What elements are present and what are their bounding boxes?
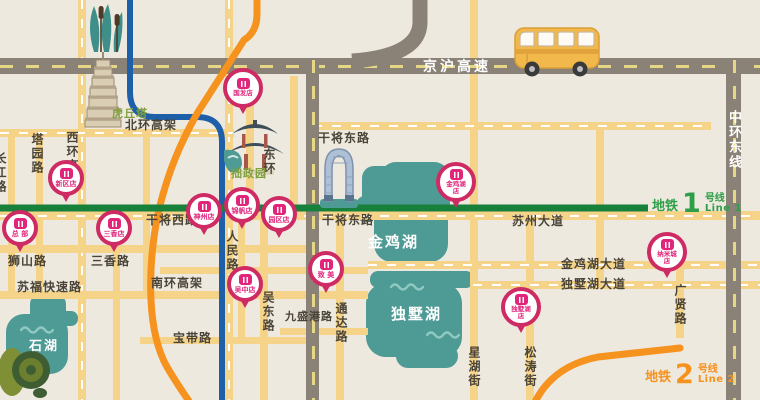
store-pin-zhimei[interactable]: 致 美 <box>308 251 344 287</box>
store-pin-yuanqu[interactable]: 园区店 <box>261 196 297 232</box>
road-shishan-sanxiang <box>0 245 312 253</box>
store-pin-guofa[interactable]: 国发店 <box>223 68 263 108</box>
label-guangxian-road: 广贤路 <box>674 284 686 326</box>
store-pin-label: 致 美 <box>313 271 339 279</box>
metro-line1-cn: 地铁 <box>652 195 678 214</box>
store-pin-label: 新区店 <box>53 180 79 188</box>
store-pin-label: 独墅湖店 <box>510 306 533 321</box>
metro-line2-badge: 地铁 2 号线 Line 2 <box>645 364 735 387</box>
road-minor <box>290 76 298 209</box>
label-jinjihu-avenue: 金鸡湖大道 <box>561 258 626 270</box>
metro-line2-cn: 地铁 <box>645 366 671 385</box>
label-zhonghuan-east: 中环东线 <box>727 110 740 170</box>
wave-icon <box>390 281 424 291</box>
label-dushuhu-avenue: 独墅湖大道 <box>561 278 626 290</box>
store-pin-label: 纳米城店 <box>656 251 679 266</box>
bus-icon <box>514 26 602 78</box>
store-pin-headquarters[interactable]: 总 部 <box>2 210 38 246</box>
store-pin-label: 总 部 <box>7 230 33 238</box>
metro-line1-en: Line 1 <box>705 204 742 215</box>
store-logo-icon <box>320 259 333 270</box>
label-baodai-road: 宝带路 <box>173 332 212 344</box>
store-logo-icon <box>661 239 674 250</box>
store-pin-label: 园区店 <box>266 216 292 224</box>
label-tayuan-road: 塔园路 <box>31 133 43 175</box>
highway-vertical <box>306 60 319 400</box>
store-logo-icon <box>515 294 528 305</box>
label-beihuan-viaduct: 北环高架 <box>125 119 177 131</box>
metro-line1-badge: 地铁 1 号线 Line 1 <box>652 193 742 216</box>
label-jiushenggang-road: 九盛港路 <box>285 311 333 322</box>
plant-icon <box>0 336 54 400</box>
gate-of-orient-icon <box>318 141 360 209</box>
store-pin-wuzhong[interactable]: 吴中店 <box>227 266 263 302</box>
label-ganjiang-east: 干将东路 <box>322 214 374 226</box>
label-suzhou-avenue: 苏州大道 <box>512 215 564 227</box>
store-logo-icon <box>14 218 27 229</box>
wave-icon <box>426 329 460 339</box>
jinji-lake-label: 金鸡湖 <box>368 231 419 252</box>
suzhou-store-map: 金鸡湖 独墅湖 石湖 <box>0 0 760 400</box>
store-logo-icon <box>198 201 211 212</box>
store-logo-icon <box>108 218 121 229</box>
store-logo-icon <box>236 195 249 206</box>
highway-ramp <box>352 0 420 61</box>
dushu-lake-label: 独墅湖 <box>391 303 442 324</box>
label-nanhuan-viaduct: 南环高架 <box>151 277 203 289</box>
metro-line2-number: 2 <box>675 364 694 387</box>
store-logo-icon <box>450 169 463 180</box>
label-humble-garden: 拙政园 <box>231 168 267 179</box>
reeds-icon <box>84 2 128 54</box>
store-logo-icon <box>273 204 286 215</box>
store-logo-icon <box>237 78 250 89</box>
road-baodai <box>140 337 310 344</box>
label-tongda-road: 通达路 <box>335 302 347 344</box>
metro-line2-en: Line 2 <box>698 375 735 386</box>
road-jiushenggang <box>280 328 368 335</box>
label-jinghu-expressway: 京沪高速 <box>423 60 491 74</box>
store-logo-icon <box>60 168 73 179</box>
store-pin-shenzhou[interactable]: 神州店 <box>186 193 222 229</box>
store-pin-nanopolis[interactable]: 纳米城店 <box>647 232 687 272</box>
store-pin-label: 神州店 <box>191 213 217 221</box>
label-ganjiang-east-north: 干将东路 <box>318 132 370 144</box>
metro-line1-number: 1 <box>682 193 701 216</box>
store-pin-xinqu[interactable]: 新区店 <box>48 160 84 196</box>
store-pin-jinfan[interactable]: 锦帆店 <box>224 187 260 223</box>
store-pin-dushuhu[interactable]: 独墅湖店 <box>501 287 541 327</box>
store-pin-sanxiang[interactable]: 三香店 <box>96 210 132 246</box>
store-logo-icon <box>239 274 252 285</box>
label-changjiang-road: 长江路 <box>0 152 6 194</box>
store-pin-label: 金鸡湖店 <box>445 181 468 196</box>
store-pin-jinjihu[interactable]: 金鸡湖店 <box>436 162 476 202</box>
store-pin-label: 吴中店 <box>232 286 258 294</box>
wave-icon <box>20 324 54 334</box>
label-sufu-expressway: 苏福快速路 <box>17 281 82 293</box>
label-songtao-street: 松涛街 <box>524 346 536 388</box>
store-pin-label: 锦帆店 <box>229 207 255 215</box>
store-pin-label: 国发店 <box>232 90 255 97</box>
label-wudong-road: 吴东路 <box>262 291 274 333</box>
label-xinghu-street: 星湖街 <box>468 346 480 388</box>
road-ganjiang-east-north <box>313 122 711 130</box>
store-pin-label: 三香店 <box>101 230 127 238</box>
